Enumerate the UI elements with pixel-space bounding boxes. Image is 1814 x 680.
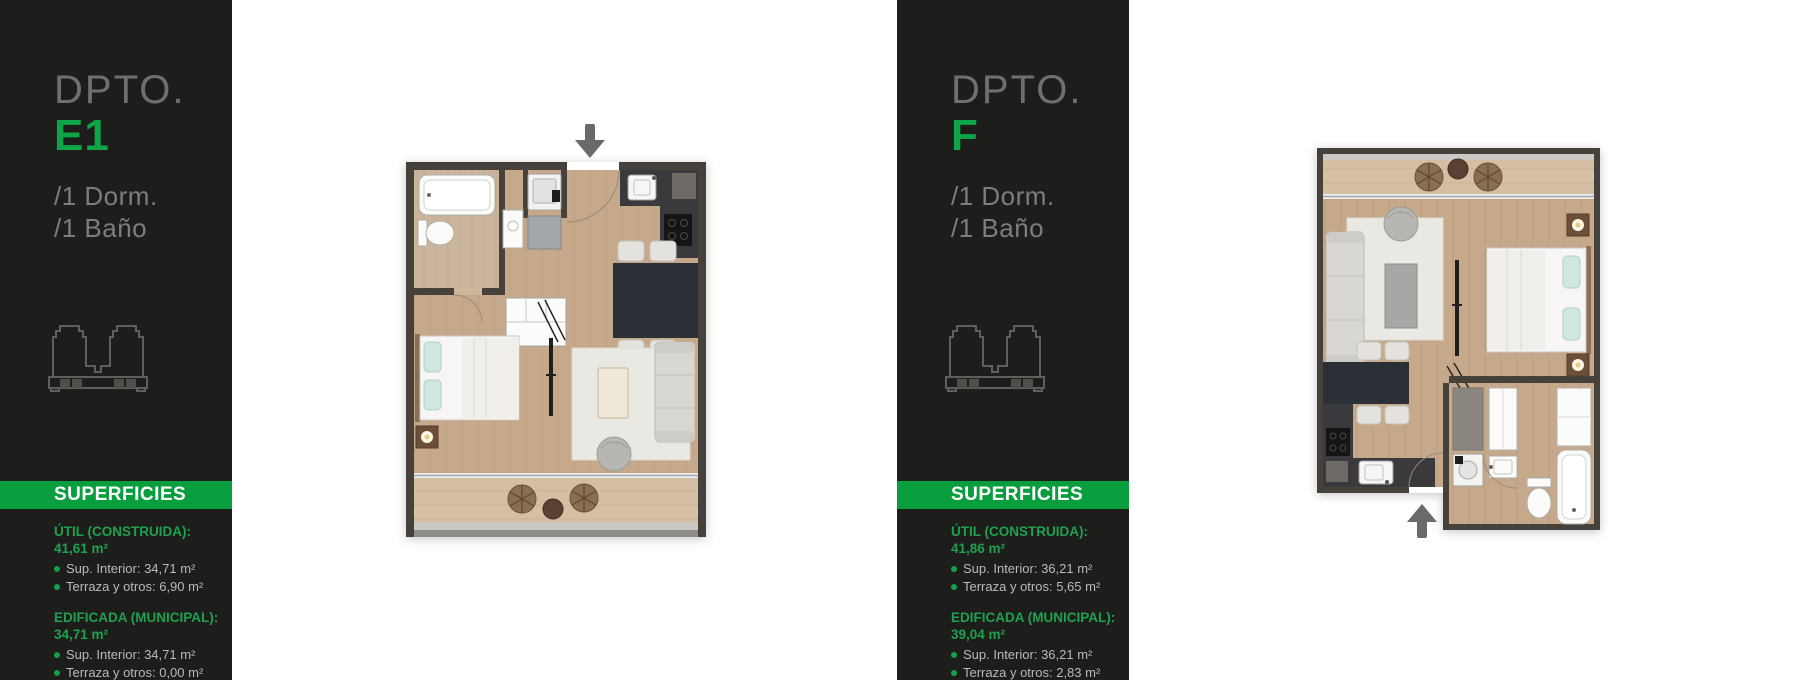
dining-table <box>1323 362 1409 404</box>
item-value: 34,71 m² <box>144 560 195 578</box>
item-label: Sup. Interior: <box>66 560 140 578</box>
feature-bathrooms: /1 Baño <box>54 212 158 244</box>
unit-code: F <box>951 114 1083 158</box>
superficies-info: ÚTIL (CONSTRUIDA): 41,61 m² Sup. Interio… <box>54 523 224 680</box>
balcony-chair <box>508 485 536 513</box>
floor-plan-area-e1 <box>406 112 706 539</box>
entrance-opening <box>1409 487 1443 493</box>
item-label: Sup. Interior: <box>963 646 1037 664</box>
section-value: 41,86 m² <box>951 541 1005 556</box>
floor-plan-f <box>1317 148 1601 530</box>
unit-features: /1 Dorm. /1 Baño <box>951 180 1055 244</box>
area-item: Terraza y otros: 5,65 m² <box>951 578 1121 596</box>
section-label: ÚTIL (CONSTRUIDA): <box>54 524 191 539</box>
bathroom-sink <box>1489 456 1517 478</box>
shower-closet <box>1489 388 1517 450</box>
item-label: Sup. Interior: <box>963 560 1037 578</box>
entrance-opening <box>567 162 619 170</box>
superficies-banner: SUPERFICIES <box>0 481 232 509</box>
section-label: ÚTIL (CONSTRUIDA): <box>951 524 1088 539</box>
unit-panel-f: DPTO. F /1 Dorm. /1 Baño SUPERFICIES <box>897 0 1129 680</box>
item-label: Terraza y otros: <box>963 664 1053 680</box>
bathtub <box>419 175 495 215</box>
item-value: 36,21 m² <box>1041 560 1092 578</box>
unit-features: /1 Dorm. /1 Baño <box>54 180 158 244</box>
area-item: Sup. Interior: 34,71 m² <box>54 560 224 578</box>
toilet <box>1527 478 1551 518</box>
unit-code: E1 <box>54 114 186 158</box>
balcony-table <box>1448 159 1468 179</box>
section-value: 39,04 m² <box>951 627 1005 642</box>
floor-plan-area-f <box>1317 148 1601 540</box>
fridge <box>1326 461 1348 482</box>
feature-bedrooms: /1 Dorm. <box>951 180 1055 212</box>
area-section-edificada: EDIFICADA (MUNICIPAL): 39,04 m² Sup. Int… <box>951 609 1121 680</box>
building-outline-icon <box>943 320 1047 394</box>
bed <box>1487 248 1586 352</box>
item-label: Terraza y otros: <box>66 664 156 680</box>
unit-heading: DPTO. E1 <box>54 70 186 158</box>
brochure-page: DPTO. E1 /1 Dorm. /1 Baño SUPERFICIES <box>0 0 1814 680</box>
armchair <box>597 437 631 471</box>
area-item: Sup. Interior: 36,21 m² <box>951 560 1121 578</box>
section-label: EDIFICADA (MUNICIPAL): <box>54 610 218 625</box>
bullet-icon <box>951 670 957 676</box>
unit-panel-e1: DPTO. E1 /1 Dorm. /1 Baño SUPERFICIES <box>0 0 232 680</box>
area-item: Terraza y otros: 2,83 m² <box>951 664 1121 680</box>
feature-bathrooms: /1 Baño <box>951 212 1055 244</box>
item-value: 5,65 m² <box>1056 578 1100 596</box>
area-item: Sup. Interior: 36,21 m² <box>951 646 1121 664</box>
dining-table <box>613 263 698 338</box>
hall-closet <box>1453 388 1483 450</box>
item-value: 0,00 m² <box>159 664 203 680</box>
linen-closet <box>1557 388 1591 446</box>
section-value: 34,71 m² <box>54 627 108 642</box>
washing-machine <box>1453 454 1483 486</box>
cooktop <box>1326 428 1350 456</box>
section-label: EDIFICADA (MUNICIPAL): <box>951 610 1115 625</box>
item-value: 2,83 m² <box>1056 664 1100 680</box>
item-value: 6,90 m² <box>159 578 203 596</box>
item-label: Sup. Interior: <box>66 646 140 664</box>
kitchen-sink <box>628 175 656 200</box>
building-outline-icon <box>46 320 150 394</box>
metal-cabinet <box>528 216 561 249</box>
item-value: 34,71 m² <box>144 646 195 664</box>
superficies-banner: SUPERFICIES <box>897 481 1129 509</box>
area-section-util: ÚTIL (CONSTRUIDA): 41,86 m² Sup. Interio… <box>951 523 1121 596</box>
headboard <box>1586 246 1591 354</box>
balcony-chair <box>1415 163 1443 191</box>
balcony-chair <box>1474 163 1502 191</box>
armchair <box>1384 207 1418 241</box>
bed <box>420 336 519 420</box>
coffee-table <box>1385 264 1417 328</box>
dpto-label: DPTO. <box>54 70 186 110</box>
washing-machine <box>528 174 561 210</box>
area-item: Terraza y otros: 0,00 m² <box>54 664 224 680</box>
fridge <box>672 173 696 199</box>
bullet-icon <box>54 566 60 572</box>
entrance-arrow-down-icon <box>574 124 606 158</box>
bullet-icon <box>54 670 60 676</box>
entrance-arrow-up-icon <box>1406 504 1438 538</box>
unit-heading: DPTO. F <box>951 70 1083 158</box>
bullet-icon <box>951 566 957 572</box>
bullet-icon <box>951 584 957 590</box>
headboard <box>415 334 420 422</box>
item-label: Terraza y otros: <box>66 578 156 596</box>
area-section-util: ÚTIL (CONSTRUIDA): 41,61 m² Sup. Interio… <box>54 523 224 596</box>
feature-bedrooms: /1 Dorm. <box>54 180 158 212</box>
area-item: Sup. Interior: 34,71 m² <box>54 646 224 664</box>
bullet-icon <box>54 652 60 658</box>
superficies-info: ÚTIL (CONSTRUIDA): 41,86 m² Sup. Interio… <box>951 523 1121 680</box>
nightstand-lamp <box>1567 354 1589 376</box>
dpto-label: DPTO. <box>951 70 1083 110</box>
coffee-table <box>598 368 628 418</box>
area-item: Terraza y otros: 6,90 m² <box>54 578 224 596</box>
area-section-edificada: EDIFICADA (MUNICIPAL): 34,71 m² Sup. Int… <box>54 609 224 680</box>
balcony-chair <box>570 484 598 512</box>
toilet <box>418 220 454 246</box>
nightstand-lamp <box>416 426 438 448</box>
item-value: 36,21 m² <box>1041 646 1092 664</box>
item-label: Terraza y otros: <box>963 578 1053 596</box>
nightstand-lamp <box>1567 214 1589 236</box>
sofa <box>655 342 695 442</box>
floor-plan-e1 <box>406 162 706 537</box>
bullet-icon <box>54 584 60 590</box>
section-value: 41,61 m² <box>54 541 108 556</box>
bathtub <box>1557 450 1591 524</box>
balcony-table <box>543 499 563 519</box>
bullet-icon <box>951 652 957 658</box>
bathroom-sink <box>503 210 523 248</box>
